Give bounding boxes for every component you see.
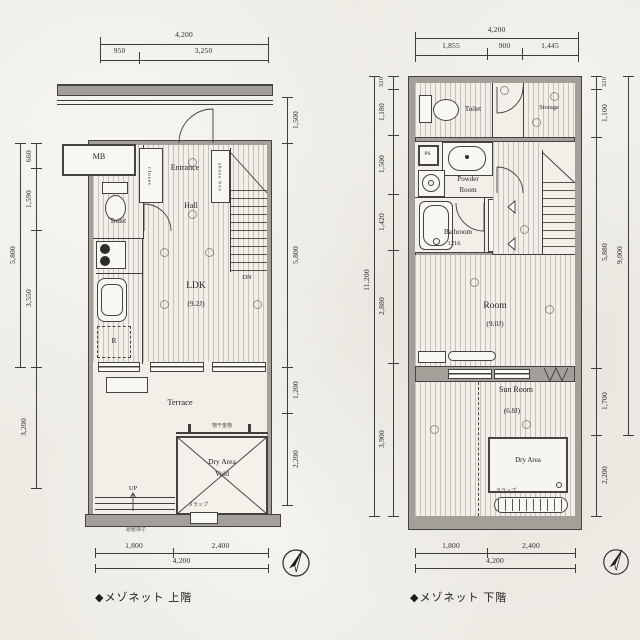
void-cross <box>177 437 267 514</box>
up-arrow <box>130 493 136 511</box>
linework-overlay <box>0 0 640 640</box>
toilet-door-arc <box>144 204 171 231</box>
bathroom-door-arc <box>456 203 484 231</box>
stairs-diagonal-lower <box>542 152 575 183</box>
closet-hinge-mark <box>508 201 515 250</box>
hall-door-arc <box>497 167 523 193</box>
floorplan-sheet: 4,200 950 3,250 MB Toilet R closet Entra… <box>0 0 640 640</box>
entrance-door-arc <box>179 109 213 143</box>
toilet-door-arc-lower <box>497 87 523 113</box>
stairs-diagonal <box>230 152 267 193</box>
folding-door-zigzag <box>544 368 568 381</box>
